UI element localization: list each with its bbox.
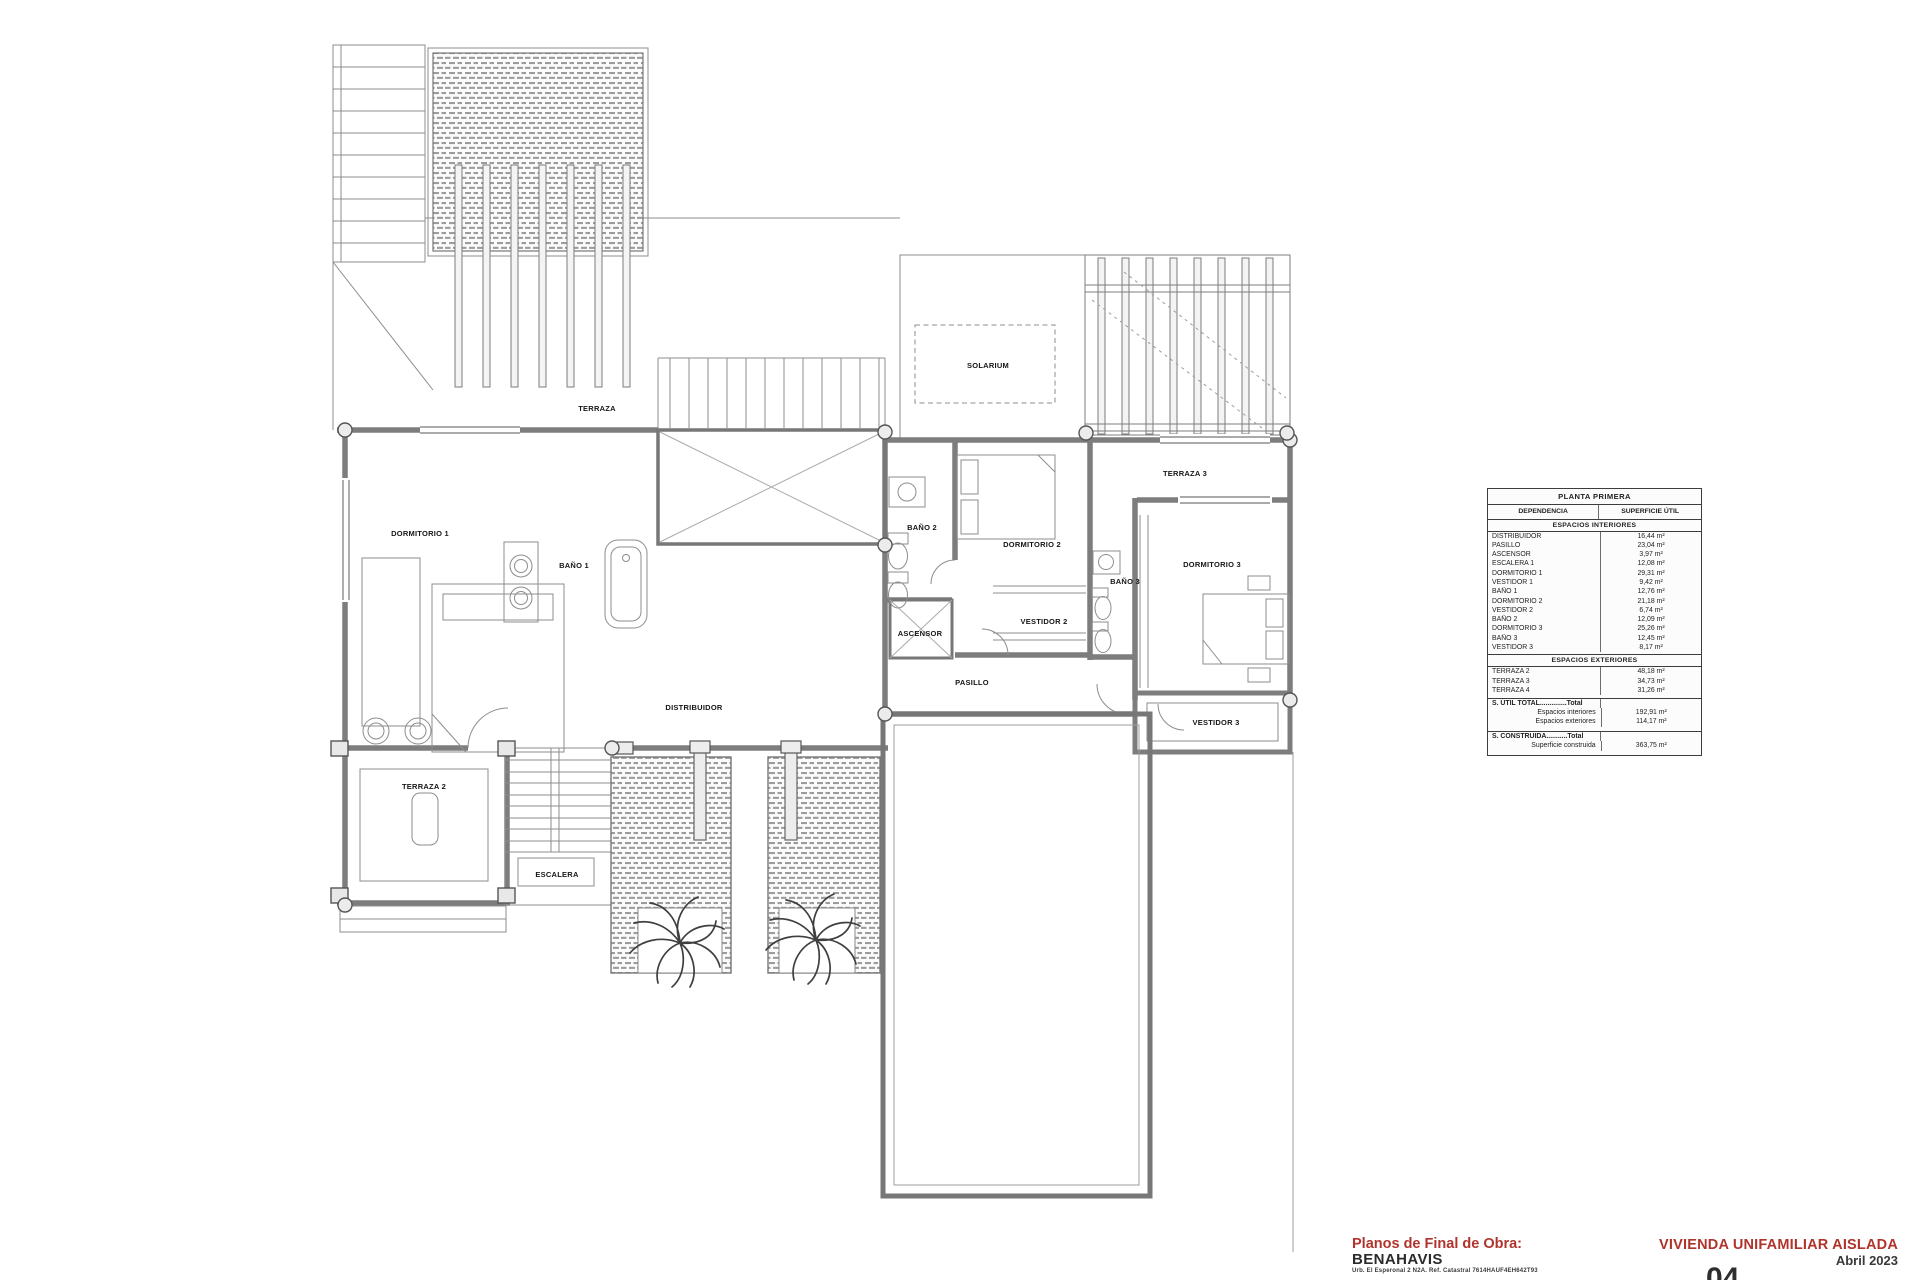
- document-type-label: Planos de Final de Obra:: [1352, 1237, 1538, 1252]
- table-row: Espacios interiores192,91 m²: [1488, 708, 1701, 717]
- section-header-interiores: ESPACIOS INTERIORES: [1488, 520, 1701, 532]
- row-value: 114,17 m²: [1601, 717, 1701, 726]
- row-value: 192,91 m²: [1601, 708, 1701, 717]
- totals-util-block: S. ÚTIL TOTAL..............Total Espacio…: [1488, 698, 1701, 729]
- solarium-block: [900, 255, 1085, 440]
- row-value: 21,18 m²: [1600, 597, 1701, 606]
- row-name: DORMITORIO 1: [1488, 569, 1600, 578]
- drawing-sheet: TERRAZA SOLARIUM DORMITORIO 1 BAÑO 1 BAÑ…: [0, 0, 1920, 1280]
- planter-top-left: [433, 53, 643, 251]
- room-label-terraza3: TERRAZA 3: [1163, 469, 1207, 478]
- bedroom1-furniture: [362, 558, 564, 752]
- table-row: BAÑO 112,76 m²: [1488, 587, 1701, 596]
- table-row: PASILLO23,04 m²: [1488, 541, 1701, 550]
- row-name: DISTRIBUIDOR: [1488, 532, 1600, 541]
- project-title: VIVIENDA UNIFAMILIAR AISLADA: [1659, 1237, 1898, 1254]
- row-value: 363,75 m²: [1601, 741, 1701, 750]
- room-label-bano2: BAÑO 2: [907, 523, 937, 532]
- table-row: VESTIDOR 19,42 m²: [1488, 578, 1701, 587]
- room-label-bano1: BAÑO 1: [559, 561, 589, 570]
- row-value: 29,31 m²: [1600, 569, 1701, 578]
- table-title: PLANTA PRIMERA: [1488, 489, 1701, 505]
- table-row: DORMITORIO 221,18 m²: [1488, 597, 1701, 606]
- row-name: ASCENSOR: [1488, 550, 1600, 559]
- room-label-escalera: ESCALERA: [535, 870, 579, 879]
- areas-summary-table: PLANTA PRIMERA DEPENDENCIA SUPERFICIE ÚT…: [1487, 488, 1702, 756]
- room-label-vestidor3: VESTIDOR 3: [1192, 718, 1239, 727]
- row-name: DORMITORIO 2: [1488, 597, 1600, 606]
- row-name: Espacios interiores: [1488, 708, 1601, 717]
- table-row: TERRAZA 248,18 m²: [1488, 667, 1701, 676]
- row-name: VESTIDOR 2: [1488, 606, 1600, 615]
- room-label-bano3: BAÑO 3: [1110, 577, 1140, 586]
- row-value: 12,09 m²: [1600, 615, 1701, 624]
- row-name: Superficie construida: [1488, 741, 1601, 750]
- municipality-label: BENAHAVIS: [1352, 1252, 1538, 1268]
- totals-construida-rows: Superficie construida363,75 m²: [1488, 741, 1701, 750]
- row-value: 23,04 m²: [1600, 541, 1701, 550]
- stair-void: [658, 430, 885, 544]
- address-line: Urb. El Esperonal 2 N2A. Ref. Catastral …: [1352, 1268, 1538, 1274]
- row-name: ESCALERA 1: [1488, 559, 1600, 568]
- planters-bottom: [611, 741, 880, 987]
- sheet-number: 04: [1706, 1262, 1739, 1280]
- table-row: VESTIDOR 26,74 m²: [1488, 606, 1701, 615]
- titleblock-left: Planos de Final de Obra: BENAHAVIS Urb. …: [1352, 1237, 1538, 1274]
- room-label-distribuidor: DISTRIBUIDOR: [665, 703, 723, 712]
- table-row: TERRAZA 431,26 m²: [1488, 686, 1701, 695]
- bedroom2-furniture: [957, 455, 1055, 539]
- pool: [883, 714, 1293, 1252]
- column-header-superficie: SUPERFICIE ÚTIL: [1598, 505, 1701, 519]
- row-value: 16,44 m²: [1600, 532, 1701, 541]
- row-value: 34,73 m²: [1600, 677, 1701, 686]
- row-value: 9,42 m²: [1600, 578, 1701, 587]
- row-value: 25,26 m²: [1600, 624, 1701, 633]
- table-row: DORMITORIO 325,26 m²: [1488, 624, 1701, 633]
- row-name: PASILLO: [1488, 541, 1600, 550]
- exterior-rows: TERRAZA 248,18 m²TERRAZA 334,73 m²TERRAZ…: [1488, 667, 1701, 695]
- totals-util-heading: S. ÚTIL TOTAL..............Total: [1488, 699, 1600, 708]
- closet2-rails: [993, 586, 1086, 640]
- row-value: 8,17 m²: [1600, 643, 1701, 652]
- totals-construida-block: S. CONSTRUIDA...........Total Superficie…: [1488, 731, 1701, 755]
- room-label-terraza2: TERRAZA 2: [402, 782, 446, 791]
- pergola-right: [1085, 255, 1290, 435]
- room-label-dormitorio1: DORMITORIO 1: [391, 529, 449, 538]
- table-row: Espacios exteriores114,17 m²: [1488, 717, 1701, 726]
- room-label-pasillo: PASILLO: [955, 678, 989, 687]
- row-value: 6,74 m²: [1600, 606, 1701, 615]
- row-value: 31,26 m²: [1600, 686, 1701, 695]
- table-row: BAÑO 312,45 m²: [1488, 634, 1701, 643]
- row-name: VESTIDOR 3: [1488, 643, 1600, 652]
- row-value: 12,76 m²: [1600, 587, 1701, 596]
- row-name: VESTIDOR 1: [1488, 578, 1600, 587]
- totals-construida-heading: S. CONSTRUIDA...........Total: [1488, 732, 1600, 741]
- table-column-headers: DEPENDENCIA SUPERFICIE ÚTIL: [1488, 505, 1701, 520]
- room-label-ascensor: ASCENSOR: [898, 629, 943, 638]
- room-label-solarium: SOLARIUM: [967, 361, 1009, 370]
- section-header-exteriores: ESPACIOS EXTERIORES: [1488, 654, 1701, 667]
- row-name: TERRAZA 2: [1488, 667, 1600, 676]
- table-row: TERRAZA 334,73 m²: [1488, 677, 1701, 686]
- bedroom3-furniture: [1140, 515, 1289, 688]
- table-row: Superficie construida363,75 m²: [1488, 741, 1701, 750]
- room-label-vestidor2: VESTIDOR 2: [1020, 617, 1067, 626]
- table-row: BAÑO 212,09 m²: [1488, 615, 1701, 624]
- totals-util-rows: Espacios interiores192,91 m²Espacios ext…: [1488, 708, 1701, 727]
- row-name: BAÑO 3: [1488, 634, 1600, 643]
- table-row: DORMITORIO 129,31 m²: [1488, 569, 1701, 578]
- table-row: ESCALERA 112,08 m²: [1488, 559, 1701, 568]
- row-name: BAÑO 1: [1488, 587, 1600, 596]
- row-name: Espacios exteriores: [1488, 717, 1601, 726]
- titleblock-right: VIVIENDA UNIFAMILIAR AISLADA Abril 2023: [1659, 1237, 1898, 1269]
- row-name: TERRAZA 4: [1488, 686, 1600, 695]
- room-label-dormitorio3: DORMITORIO 3: [1183, 560, 1241, 569]
- table-row: VESTIDOR 38,17 m²: [1488, 643, 1701, 652]
- bathroom2-fixtures: [888, 477, 925, 608]
- row-value: 12,08 m²: [1600, 559, 1701, 568]
- column-header-dependencia: DEPENDENCIA: [1488, 505, 1598, 519]
- row-value: 12,45 m²: [1600, 634, 1701, 643]
- room-label-terraza: TERRAZA: [578, 404, 616, 413]
- row-name: BAÑO 2: [1488, 615, 1600, 624]
- row-value: 3,97 m²: [1600, 550, 1701, 559]
- bathroom3-fixtures: [1092, 551, 1120, 653]
- main-stair: [658, 358, 885, 430]
- table-row: DISTRIBUIDOR16,44 m²: [1488, 532, 1701, 541]
- row-value: 48,18 m²: [1600, 667, 1701, 676]
- row-name: DORMITORIO 3: [1488, 624, 1600, 633]
- table-row: ASCENSOR3,97 m²: [1488, 550, 1701, 559]
- date-label: Abril 2023: [1659, 1254, 1898, 1269]
- interior-rows: DISTRIBUIDOR16,44 m²PASILLO23,04 m²ASCEN…: [1488, 532, 1701, 653]
- stairs-down: [505, 748, 613, 905]
- row-name: TERRAZA 3: [1488, 677, 1600, 686]
- room-label-dormitorio2: DORMITORIO 2: [1003, 540, 1061, 549]
